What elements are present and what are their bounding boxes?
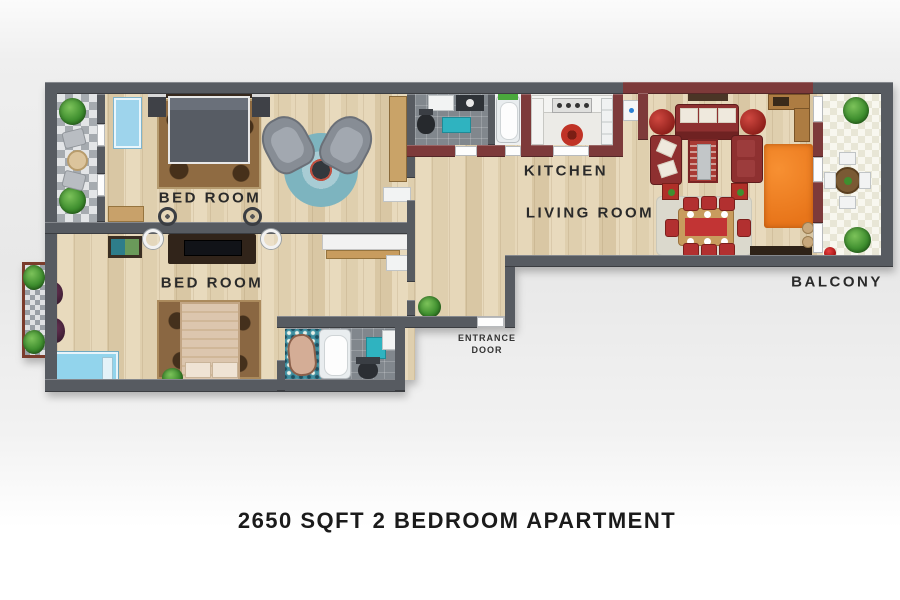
plan-title: 2650 SQFT 2 BEDROOM APARTMENT xyxy=(238,508,676,534)
wall-bottom-left xyxy=(45,379,405,392)
round-mirror xyxy=(143,229,163,249)
wall-balcony-right xyxy=(813,122,823,157)
washer-dial xyxy=(629,108,634,113)
door-balcony xyxy=(813,223,823,253)
toilet-bottom xyxy=(358,361,378,379)
wall-balcony-partition xyxy=(97,94,105,124)
sofa-cushion xyxy=(718,108,736,123)
sofa-pillow xyxy=(657,160,677,179)
loveseat-right xyxy=(731,135,763,183)
door-opening xyxy=(455,146,477,156)
loveseat-left xyxy=(650,135,682,185)
dining-table xyxy=(678,208,734,246)
label-entrance-line2: DOOR xyxy=(458,344,516,356)
wall-top-maroon xyxy=(623,82,813,94)
planter-plant xyxy=(23,330,45,354)
wall-tub-partition xyxy=(488,94,495,145)
bed-double-beige xyxy=(180,302,240,381)
dining-chair xyxy=(683,197,699,211)
balcony-plant xyxy=(843,97,869,124)
floor-plan-image: BED ROOM BED ROOM KITCHEN LIVING ROOM BA… xyxy=(0,0,900,600)
tv-console xyxy=(168,234,256,264)
plate xyxy=(687,211,694,218)
toilet-tank xyxy=(356,357,380,364)
round-mirror xyxy=(261,229,281,249)
plant-pot xyxy=(737,189,744,196)
kitchen-round-rug xyxy=(561,124,583,146)
wall-bathroom-bottom xyxy=(477,145,505,157)
barrel-chair-left xyxy=(649,109,675,135)
orange-rug xyxy=(764,144,813,228)
wall-hall-vertical xyxy=(407,300,415,316)
kitchen-counter-right xyxy=(601,98,613,145)
counter-sink xyxy=(466,99,474,107)
wall-kitchen-right xyxy=(613,94,623,157)
sofa-cushion xyxy=(680,108,698,123)
bath-shelf-green xyxy=(498,94,518,100)
room-label-bedroom2: BED ROOM xyxy=(161,275,264,292)
toilet-top xyxy=(417,114,435,134)
wheel-clock-decor xyxy=(158,207,177,226)
wall-kitchen-left xyxy=(521,94,531,157)
wall-balcony-partition xyxy=(97,146,105,174)
bed-pillow xyxy=(212,362,238,378)
bed-pillow xyxy=(185,362,211,378)
seat-cushion-line xyxy=(737,140,755,157)
stove xyxy=(552,98,592,113)
wall-kitchen-bottom xyxy=(589,145,613,157)
armchair-cushion xyxy=(326,123,367,166)
dresser xyxy=(108,206,144,222)
entrance-plant xyxy=(418,296,441,318)
door-opening xyxy=(505,146,521,156)
wall-bottom-right xyxy=(505,255,893,267)
bed-double-gray xyxy=(166,84,252,164)
sofa-three-seat xyxy=(675,104,739,140)
door-kitchen-mat xyxy=(553,146,589,156)
nightstand-left xyxy=(148,94,166,117)
bistro-table xyxy=(67,150,88,171)
door-balcony xyxy=(813,96,823,122)
wall-top-left xyxy=(45,82,623,94)
stove-burner xyxy=(557,103,562,108)
toilet-tank xyxy=(419,109,433,115)
wall-hall-vertical xyxy=(407,200,415,282)
bathtub-top xyxy=(496,95,520,143)
armchair-cushion xyxy=(267,123,308,166)
table-plant xyxy=(844,177,852,185)
room-label-kitchen: KITCHEN xyxy=(524,163,608,180)
label-entrance-line1: ENTRANCE xyxy=(458,332,516,344)
desk-items xyxy=(773,97,789,106)
door-entrance xyxy=(477,317,504,327)
door-opening xyxy=(97,124,105,146)
patio-chair xyxy=(839,196,856,209)
bathtub-basin xyxy=(324,335,348,376)
wall-entrance xyxy=(277,316,477,328)
balcony-plant xyxy=(59,98,86,125)
room-label-bedroom1: BED ROOM xyxy=(159,190,262,207)
seat-cushion-line xyxy=(737,160,755,177)
corner-desk-return xyxy=(794,108,810,142)
wall-balcony-right xyxy=(813,182,823,223)
room-label-living-room: LIVING ROOM xyxy=(526,205,654,222)
wardrobe xyxy=(389,96,407,182)
bathroom-counter xyxy=(456,95,484,111)
wall-living-divider xyxy=(638,93,648,140)
wall-balcony-partition xyxy=(97,196,105,222)
white-console xyxy=(322,234,410,250)
dining-chair xyxy=(665,219,679,237)
wall-left xyxy=(45,82,57,392)
coffee-table xyxy=(688,139,718,183)
sofa-pillow xyxy=(656,138,677,158)
planter-plant xyxy=(23,265,45,290)
door-balcony xyxy=(813,157,823,182)
dining-chair xyxy=(719,197,735,211)
balcony-plant xyxy=(59,187,86,214)
wall-right xyxy=(881,82,893,267)
wall-bathroom-bottom xyxy=(407,145,455,157)
patio-table xyxy=(834,167,861,194)
bathtub-basin xyxy=(500,102,518,140)
wall-kitchen-bottom xyxy=(531,145,553,157)
dining-chair xyxy=(737,219,751,237)
dining-chair xyxy=(701,196,717,210)
bed-mattress xyxy=(168,96,250,164)
art-frames xyxy=(108,236,142,258)
patio-chair xyxy=(839,152,856,165)
tv-screen xyxy=(184,240,242,256)
wall-hall-vertical xyxy=(407,94,415,178)
sofa-cushion xyxy=(699,108,717,123)
wall-bathroom-left xyxy=(277,360,285,391)
nightstand-right xyxy=(252,94,270,117)
side-table xyxy=(662,183,679,200)
balcony-plant xyxy=(844,227,871,253)
blue-bench xyxy=(114,98,141,148)
daybed-pillow xyxy=(102,357,113,380)
bathtub-bottom xyxy=(319,329,351,379)
coffee-table-top xyxy=(697,144,711,180)
door-opening xyxy=(97,174,105,196)
table-runner xyxy=(685,218,727,236)
wheel-clock-decor xyxy=(243,207,262,226)
teal-bath-mat xyxy=(442,117,471,133)
room-label-balcony: BALCONY xyxy=(791,274,883,291)
patio-chair xyxy=(859,172,871,189)
plant-pot xyxy=(668,189,675,196)
wall-bathroom-right xyxy=(395,316,405,391)
barrel-chair-right xyxy=(740,109,766,135)
label-entrance-door: ENTRANCE DOOR xyxy=(458,332,516,356)
patio-chair xyxy=(824,172,836,189)
kitchen-counter-left xyxy=(531,98,544,145)
wall-tv-divider xyxy=(45,222,415,234)
